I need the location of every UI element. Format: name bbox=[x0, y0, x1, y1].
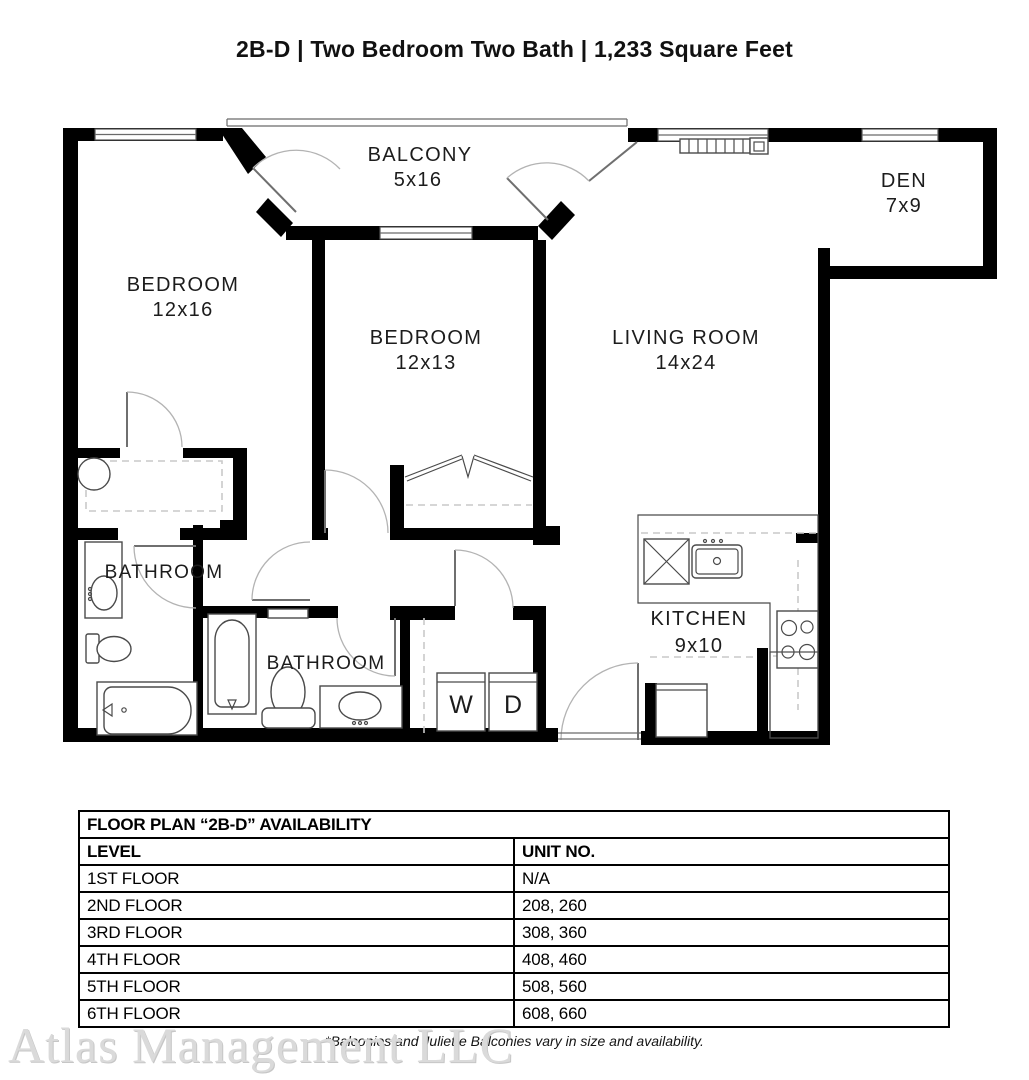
bedroom2-closet-bifold bbox=[405, 455, 533, 481]
cell-units: 608, 660 bbox=[514, 1000, 949, 1027]
room-dims-den: 7x9 bbox=[886, 195, 922, 217]
table-row: 4TH FLOOR 408, 460 bbox=[79, 946, 949, 973]
floor-plan-svg: W D BALCONY 5x16 DEN 7x9 BEDROOM 12x16 B… bbox=[0, 0, 1029, 800]
dryer-label: D bbox=[504, 691, 522, 719]
room-label-bathroom-1: BATHROOM bbox=[105, 562, 224, 583]
washer-label: W bbox=[449, 691, 473, 719]
balcony-railing bbox=[227, 119, 627, 126]
room-dims-balcony: 5x16 bbox=[394, 169, 443, 191]
cell-level: 1ST FLOOR bbox=[79, 865, 514, 892]
washer-dryer: W D bbox=[437, 673, 537, 731]
cell-level: 2ND FLOOR bbox=[79, 892, 514, 919]
cell-units: 208, 260 bbox=[514, 892, 949, 919]
cell-level: 4TH FLOOR bbox=[79, 946, 514, 973]
room-label-den: DEN bbox=[881, 170, 927, 192]
room-label-bedroom-2: BEDROOM bbox=[370, 327, 482, 349]
room-labels: BALCONY 5x16 DEN 7x9 BEDROOM 12x16 BEDRO… bbox=[105, 144, 927, 674]
bedroom1-closet bbox=[78, 458, 110, 490]
room-dims-kitchen: 9x10 bbox=[675, 635, 724, 657]
table-header-row: LEVEL UNIT NO. bbox=[79, 838, 949, 865]
walls bbox=[63, 128, 997, 745]
room-label-kitchen: KITCHEN bbox=[651, 608, 748, 630]
watermark: Atlas Management LLC bbox=[8, 1016, 514, 1074]
room-dims-bedroom-2: 12x13 bbox=[396, 352, 457, 374]
room-dims-living-room: 14x24 bbox=[656, 352, 717, 374]
cell-level: 5TH FLOOR bbox=[79, 973, 514, 1000]
table-title-row: FLOOR PLAN “2B-D” AVAILABILITY bbox=[79, 811, 949, 838]
room-label-bedroom-1: BEDROOM bbox=[127, 274, 239, 296]
cell-units: N/A bbox=[514, 865, 949, 892]
cell-units: 308, 360 bbox=[514, 919, 949, 946]
table-row: 3RD FLOOR 308, 360 bbox=[79, 919, 949, 946]
column-header-unit-no: UNIT NO. bbox=[514, 838, 949, 865]
column-header-level: LEVEL bbox=[79, 838, 514, 865]
room-label-living-room: LIVING ROOM bbox=[612, 327, 760, 349]
cell-level: 3RD FLOOR bbox=[79, 919, 514, 946]
cell-units: 508, 560 bbox=[514, 973, 949, 1000]
table-row: 1ST FLOOR N/A bbox=[79, 865, 949, 892]
room-label-balcony: BALCONY bbox=[368, 144, 473, 166]
table-row: 2ND FLOOR 208, 260 bbox=[79, 892, 949, 919]
room-label-bathroom-2: BATHROOM bbox=[267, 653, 386, 674]
availability-table: FLOOR PLAN “2B-D” AVAILABILITY LEVEL UNI… bbox=[78, 810, 950, 1028]
table-title: FLOOR PLAN “2B-D” AVAILABILITY bbox=[79, 811, 949, 838]
table-row: 5TH FLOOR 508, 560 bbox=[79, 973, 949, 1000]
room-dims-bedroom-1: 12x16 bbox=[153, 299, 214, 321]
cell-units: 408, 460 bbox=[514, 946, 949, 973]
windows bbox=[95, 129, 938, 239]
fireplace-vent bbox=[680, 138, 768, 154]
